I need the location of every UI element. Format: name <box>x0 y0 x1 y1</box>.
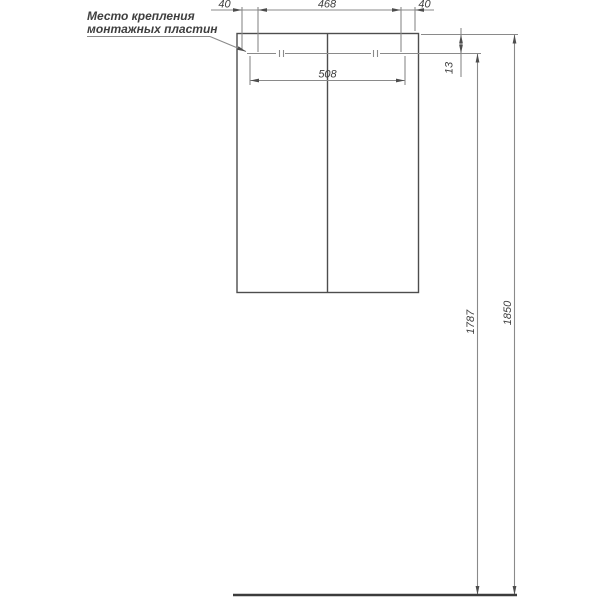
arrowhead <box>392 8 401 12</box>
arrowhead <box>476 54 480 63</box>
note-text-line2: монтажных пластин <box>87 22 218 36</box>
arrowhead <box>476 586 480 595</box>
dim-label-468: 468 <box>318 0 337 11</box>
arrowhead <box>233 8 242 12</box>
dim-label-13: 13 <box>444 61 456 74</box>
technical-drawing-canvas: 40 468 40 508 13 1787 1850 Место креплен… <box>0 0 600 600</box>
dim-label-40-right: 40 <box>418 0 431 11</box>
dim-label-1787: 1787 <box>465 309 477 334</box>
arrowhead <box>513 586 517 595</box>
arrowhead <box>513 35 517 44</box>
arrowhead <box>250 79 259 83</box>
arrowhead <box>459 35 463 44</box>
dim-label-508: 508 <box>318 69 337 81</box>
arrowhead <box>396 79 405 83</box>
dim-label-1850: 1850 <box>502 300 514 325</box>
arrowhead <box>459 45 463 54</box>
note-text-line1: Место крепления <box>87 9 195 23</box>
dim-label-40-left: 40 <box>218 0 231 11</box>
technical-drawing-page: 40 468 40 508 13 1787 1850 Место креплен… <box>0 0 600 600</box>
arrowhead <box>258 8 267 12</box>
